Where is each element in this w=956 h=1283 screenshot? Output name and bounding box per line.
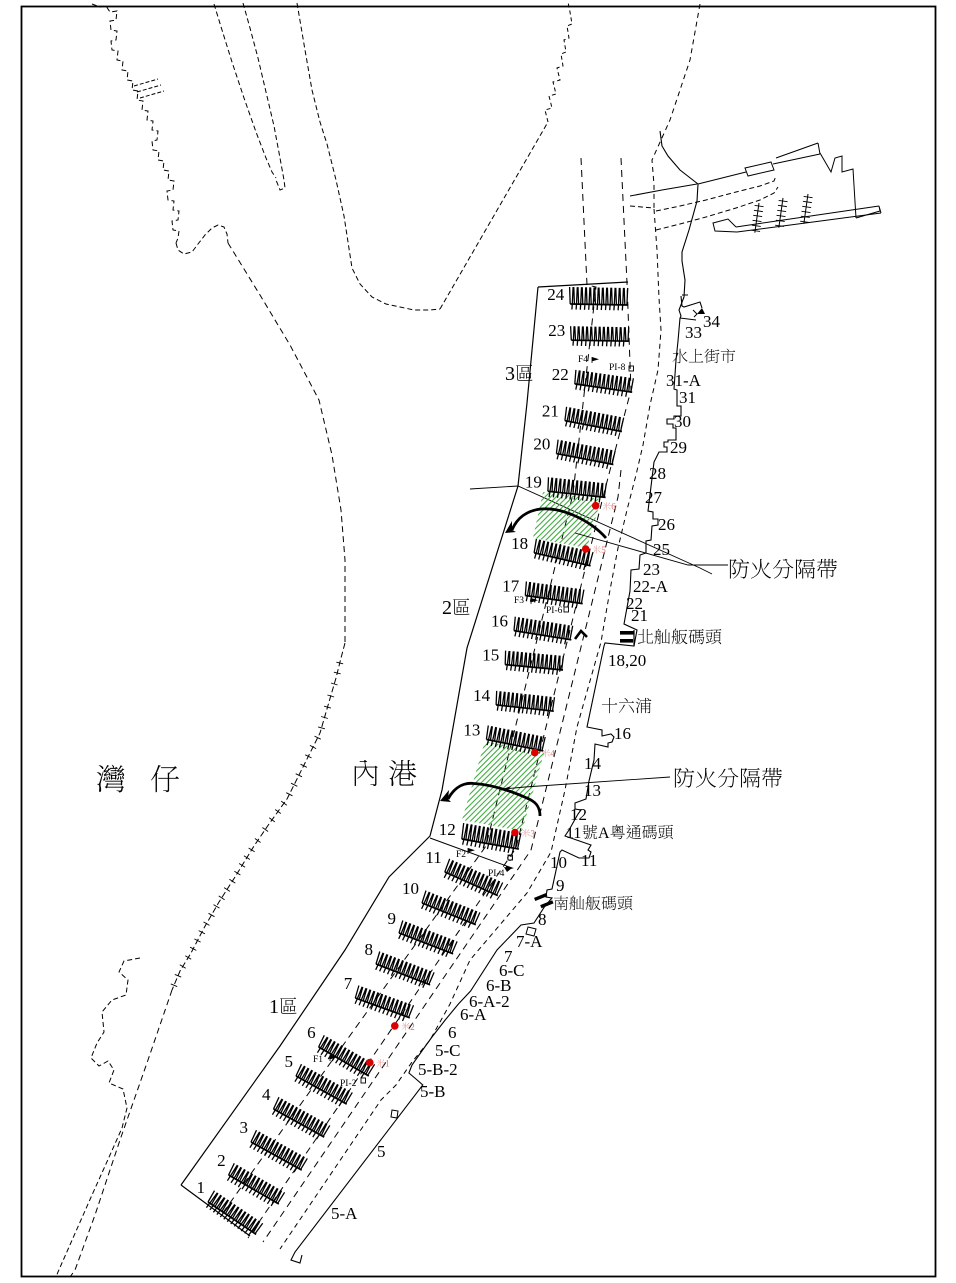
svg-text:F3: F3 <box>514 596 524 606</box>
svg-text:8: 8 <box>365 940 374 959</box>
svg-text:10: 10 <box>402 879 419 898</box>
svg-text:27: 27 <box>645 488 663 507</box>
svg-text:11: 11 <box>581 851 597 870</box>
svg-text:13: 13 <box>584 781 601 800</box>
svg-text:1: 1 <box>269 996 279 1018</box>
svg-text:F1: F1 <box>313 1055 323 1065</box>
svg-text:14: 14 <box>584 754 602 773</box>
svg-text:PI-8: PI-8 <box>609 363 626 373</box>
svg-text:3: 3 <box>240 1118 249 1137</box>
svg-text:18,20: 18,20 <box>608 651 646 670</box>
svg-text:17: 17 <box>502 577 520 596</box>
svg-text:11: 11 <box>566 825 581 842</box>
svg-text:10: 10 <box>550 853 567 872</box>
svg-text:A: A <box>598 825 610 842</box>
svg-text:PI-4: PI-4 <box>488 869 505 879</box>
svg-text:5-C: 5-C <box>435 1041 461 1060</box>
svg-text:6-A: 6-A <box>460 1005 487 1024</box>
svg-text:2: 2 <box>217 1151 226 1170</box>
svg-text:18: 18 <box>511 534 528 553</box>
svg-text:9: 9 <box>388 909 397 928</box>
svg-text:2: 2 <box>442 597 452 619</box>
svg-text:6: 6 <box>307 1023 316 1042</box>
svg-text:PI-6: PI-6 <box>546 606 563 616</box>
svg-text:F4: F4 <box>578 355 588 365</box>
svg-text:5: 5 <box>377 1142 386 1161</box>
svg-text:34: 34 <box>703 312 721 331</box>
svg-text:11: 11 <box>425 848 441 867</box>
svg-text:26: 26 <box>658 515 675 534</box>
svg-text:29: 29 <box>670 438 687 457</box>
svg-text:3: 3 <box>530 829 535 839</box>
svg-text:F2: F2 <box>456 850 466 860</box>
svg-text:1: 1 <box>197 1178 206 1197</box>
svg-text:8: 8 <box>538 910 547 929</box>
svg-text:12: 12 <box>439 820 456 839</box>
svg-text:6: 6 <box>448 1023 457 1042</box>
svg-text:4: 4 <box>262 1085 271 1104</box>
svg-text:13: 13 <box>463 720 480 739</box>
svg-text:7-A: 7-A <box>516 932 543 951</box>
svg-text:5-B-2: 5-B-2 <box>418 1060 458 1079</box>
svg-text:12: 12 <box>570 805 587 824</box>
svg-text:31: 31 <box>679 388 696 407</box>
svg-text:20: 20 <box>533 435 550 454</box>
svg-text:21: 21 <box>542 402 559 421</box>
svg-text:25: 25 <box>653 540 670 559</box>
svg-text:28: 28 <box>649 464 666 483</box>
svg-text:2: 2 <box>410 1022 415 1032</box>
svg-text:6: 6 <box>611 502 616 512</box>
svg-text:21: 21 <box>631 606 648 625</box>
svg-text:9: 9 <box>556 876 565 895</box>
svg-text:5: 5 <box>601 545 606 555</box>
svg-text:22: 22 <box>552 365 569 384</box>
svg-text:5-B: 5-B <box>420 1082 446 1101</box>
svg-text:30: 30 <box>674 412 691 431</box>
svg-text:33: 33 <box>685 323 702 342</box>
svg-text:1: 1 <box>385 1059 390 1069</box>
svg-text:15: 15 <box>482 646 499 665</box>
svg-text:5-A: 5-A <box>331 1204 358 1223</box>
svg-text:14: 14 <box>473 686 491 705</box>
svg-text:16: 16 <box>491 612 508 631</box>
svg-text:4: 4 <box>550 749 555 759</box>
svg-text:24: 24 <box>547 285 565 304</box>
svg-text:5: 5 <box>285 1052 294 1071</box>
svg-text:3: 3 <box>505 363 515 385</box>
svg-text:7: 7 <box>344 974 353 993</box>
svg-text:19: 19 <box>525 472 542 491</box>
svg-text:PI-2: PI-2 <box>340 1079 357 1089</box>
svg-text:16: 16 <box>614 724 631 743</box>
svg-text:23: 23 <box>548 321 565 340</box>
